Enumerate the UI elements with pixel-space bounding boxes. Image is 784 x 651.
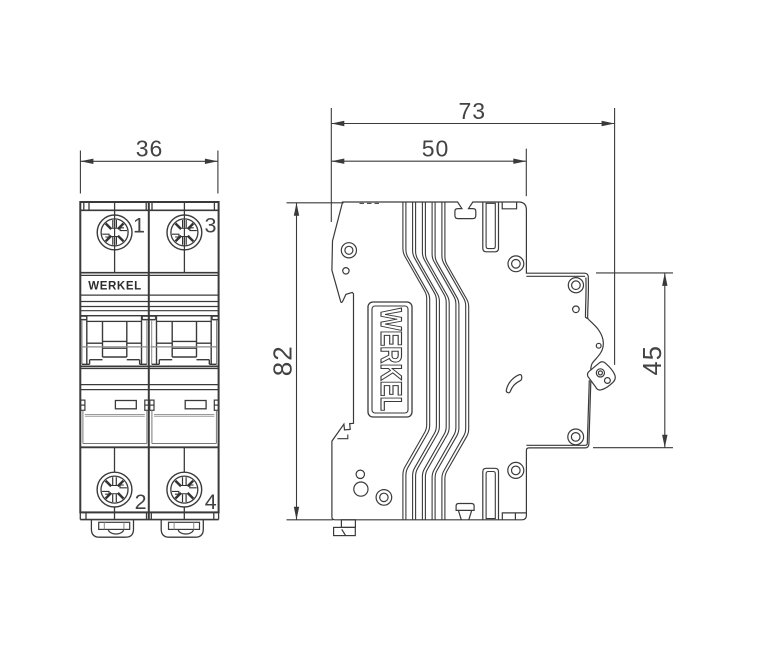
svg-text:WERKEL: WERKEL (374, 308, 407, 411)
svg-text:2: 2 (135, 490, 147, 514)
svg-text:3: 3 (205, 213, 217, 237)
svg-text:82: 82 (268, 345, 298, 376)
svg-text:1: 1 (133, 213, 145, 237)
svg-text:WERKEL: WERKEL (88, 281, 141, 293)
svg-text:50: 50 (422, 136, 450, 162)
svg-text:36: 36 (136, 136, 164, 162)
svg-text:45: 45 (639, 345, 667, 375)
svg-text:73: 73 (459, 98, 487, 124)
svg-text:4: 4 (205, 490, 217, 514)
